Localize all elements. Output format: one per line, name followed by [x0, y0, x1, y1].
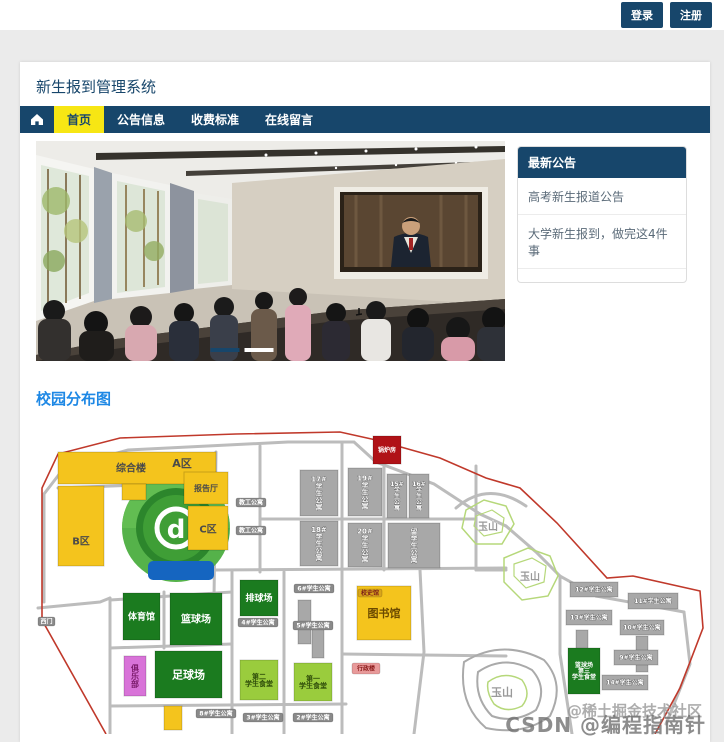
map-pill-label: 教工公寓 — [238, 499, 263, 507]
stadium-logo: d — [167, 515, 186, 545]
announcement-item[interactable]: 大学新生报到，做完这4件事 — [518, 215, 686, 269]
map-label: C区 — [199, 524, 216, 536]
map-label: 12#学生公寓 — [575, 586, 612, 594]
map-pill-label: 教工公寓 — [238, 527, 263, 535]
map-label: 篮球场 — [180, 613, 211, 626]
nav-home-tab[interactable] — [20, 106, 54, 133]
map-pill-label: 3#学生公寓 — [246, 714, 279, 722]
map-pill-label: 8#学生公寓 — [199, 710, 232, 718]
announcements-list: 高考新生报道公告大学新生报到，做完这4件事 — [518, 178, 686, 269]
map-label: 11#学生公寓 — [634, 597, 671, 605]
main-navbar: 首页公告信息收费标准在线留言 — [20, 106, 710, 133]
map-pill-label: 校史馆 — [361, 589, 379, 597]
mountain-label: 玉山 — [478, 520, 498, 533]
carousel — [36, 141, 505, 361]
map-label: 10#学生公寓 — [623, 624, 660, 632]
map-pill-label: 5#学生公寓 — [296, 622, 329, 630]
map-building — [164, 706, 182, 730]
map-label: B区 — [72, 536, 90, 548]
carousel-indicator[interactable] — [245, 348, 274, 352]
carousel-indicators — [211, 348, 274, 352]
nav-item[interactable]: 收费标准 — [178, 106, 252, 133]
announcement-item[interactable]: 高考新生报道公告 — [518, 178, 686, 215]
map-building — [312, 626, 324, 658]
map-pill-label: 6#学生公寓 — [297, 585, 330, 593]
map-label: 综合楼 — [116, 462, 146, 475]
mountain-label: 玉山 — [491, 685, 513, 699]
home-icon — [30, 113, 44, 126]
top-auth-bar: 登录 注册 — [0, 0, 724, 30]
map-pill-label: 行政楼 — [356, 665, 375, 673]
main-content-card: 新生报到管理系统 首页公告信息收费标准在线留言 — [20, 62, 710, 742]
login-button[interactable]: 登录 — [621, 2, 663, 28]
map-pill-label: 4#学生公寓 — [241, 619, 274, 627]
announcements-title: 最新公告 — [518, 147, 686, 178]
page-title: 新生报到管理系统 — [20, 62, 710, 106]
map-label: 9#学生公寓 — [619, 654, 652, 662]
map-label: 图书馆 — [368, 606, 401, 620]
map-label: A区 — [172, 457, 192, 470]
map-pill-label: 西门 — [40, 618, 52, 626]
register-button[interactable]: 注册 — [670, 2, 712, 28]
map-building — [58, 486, 104, 566]
map-building — [122, 484, 146, 500]
nav-items: 首页公告信息收费标准在线留言 — [54, 106, 326, 133]
nav-item[interactable]: 在线留言 — [252, 106, 326, 133]
content-row: 最新公告 高考新生报道公告大学新生报到，做完这4件事 — [20, 133, 710, 361]
announcements-panel: 最新公告 高考新生报道公告大学新生报到，做完这4件事 — [517, 146, 687, 283]
nav-item[interactable]: 公告信息 — [104, 106, 178, 133]
map-label: 足球场 — [172, 667, 205, 681]
map-label: 排球场 — [245, 592, 272, 604]
map-label: 留学生公寓 — [411, 527, 418, 564]
mountain-label: 玉山 — [520, 570, 540, 583]
carousel-indicator[interactable] — [211, 348, 240, 352]
map-label: 俱乐部 — [130, 663, 139, 689]
map-label: 13#学生公寓 — [570, 614, 607, 622]
map-label: 锅炉房 — [378, 446, 396, 454]
map-label: 报告厅 — [194, 483, 218, 493]
carousel-slide-photo — [36, 141, 505, 361]
map-pill-label: 2#学生公寓 — [296, 714, 329, 722]
map-label: 14#学生公寓 — [606, 679, 643, 687]
campus-map-svg: d 综合楼A区报告厅C区B区锅炉房17#学生公寓19#学生公寓15#学生公寓16… — [36, 422, 710, 734]
map-label: 体育馆 — [128, 611, 155, 623]
nav-item[interactable]: 首页 — [54, 106, 104, 133]
campus-map: d 综合楼A区报告厅C区B区锅炉房17#学生公寓19#学生公寓15#学生公寓16… — [36, 422, 710, 738]
campus-map-title: 校园分布图 — [20, 361, 710, 422]
